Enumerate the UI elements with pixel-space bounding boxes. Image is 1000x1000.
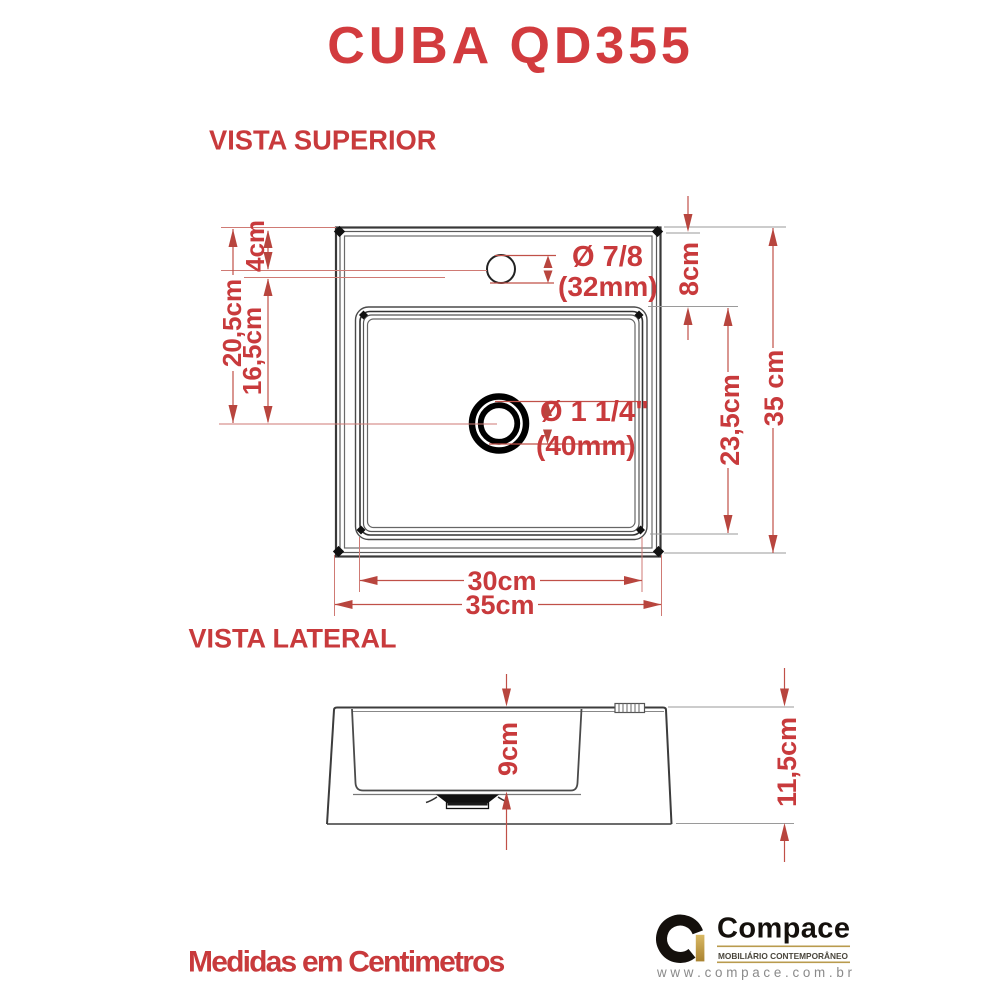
svg-text:(32mm): (32mm) [558, 271, 658, 302]
svg-text:(40mm): (40mm) [536, 430, 636, 461]
svg-text:Ø 7/8: Ø 7/8 [572, 241, 643, 273]
svg-text:VISTA LATERAL: VISTA LATERAL [189, 624, 397, 654]
svg-text:23,5cm: 23,5cm [715, 374, 745, 466]
svg-text:Ø 1 1/4": Ø 1 1/4" [540, 396, 649, 428]
svg-text:Compace: Compace [717, 913, 850, 945]
svg-text:9cm: 9cm [493, 722, 523, 776]
svg-text:VISTA SUPERIOR: VISTA SUPERIOR [209, 125, 437, 156]
svg-text:4cm: 4cm [240, 220, 270, 272]
svg-text:11,5cm: 11,5cm [772, 717, 802, 807]
svg-text:35 cm: 35 cm [759, 350, 789, 427]
svg-text:CUBA QD355: CUBA QD355 [327, 17, 694, 75]
svg-text:Medidas em Centimetros: Medidas em Centimetros [188, 946, 505, 979]
svg-text:w w w . c o m p a c e . c o m: w w w . c o m p a c e . c o m . b r [656, 965, 852, 980]
svg-text:MOBILIÁRIO CONTEMPORÂNEO: MOBILIÁRIO CONTEMPORÂNEO [718, 950, 848, 961]
svg-text:16,5cm: 16,5cm [237, 307, 267, 395]
svg-text:35cm: 35cm [465, 590, 534, 620]
svg-text:8cm: 8cm [674, 242, 704, 296]
